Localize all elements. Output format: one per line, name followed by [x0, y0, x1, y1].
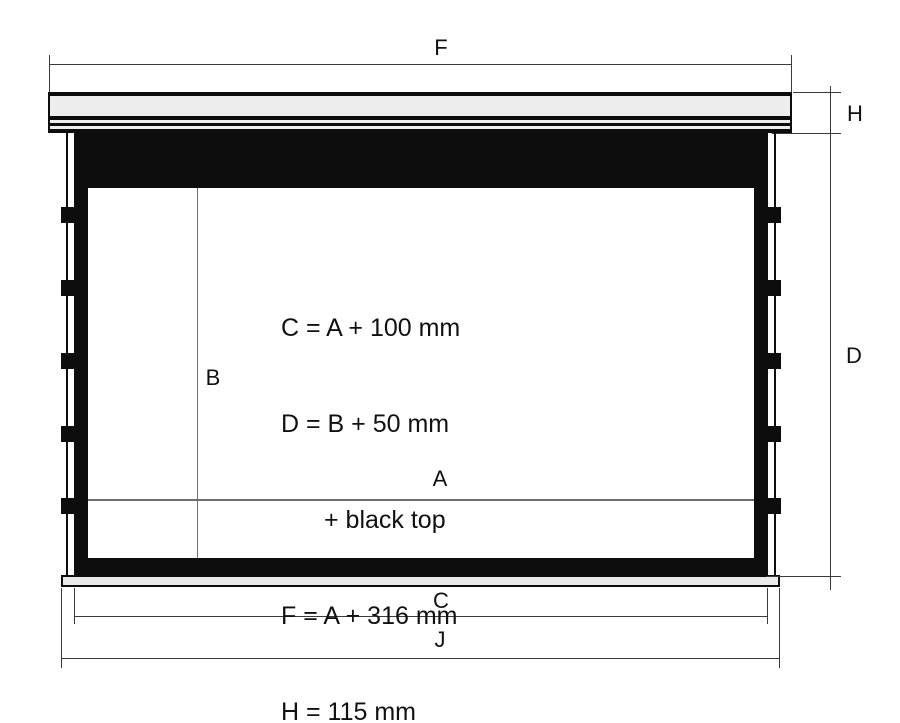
tension-tab-right-4	[765, 426, 781, 442]
label-h: H	[843, 102, 867, 126]
f-extension-line-right	[791, 55, 792, 92]
label-f: F	[429, 36, 453, 60]
formula-line-d: D = B + 50 mm	[281, 408, 460, 440]
tension-tab-left-4	[61, 426, 77, 442]
c-extension-line-right	[767, 588, 768, 624]
h-tick-top	[793, 92, 841, 93]
projection-screen-dimension-drawing: F H B A D C J C =	[0, 0, 900, 723]
j-extension-line-left	[61, 588, 62, 668]
f-extension-line-left	[49, 55, 50, 92]
housing-top-edge	[50, 92, 790, 96]
tension-tab-right-1	[765, 207, 781, 223]
j-extension-line-right	[779, 588, 780, 668]
label-b: B	[201, 366, 225, 390]
formula-line-f: F = A + 316 mm	[281, 600, 460, 632]
d-tick-bottom	[766, 576, 841, 577]
tension-tab-left-2	[61, 280, 77, 296]
screen-housing	[48, 92, 792, 133]
tension-tab-left-1	[61, 207, 77, 223]
housing-groove-lower	[50, 123, 790, 126]
c-extension-line-left	[74, 588, 75, 624]
tension-tab-right-2	[765, 280, 781, 296]
b-dimension-line	[197, 188, 198, 558]
h-d-dimension-line	[830, 86, 831, 590]
formula-line-c: C = A + 100 mm	[281, 312, 460, 344]
f-dimension-line	[49, 64, 792, 65]
tension-tab-right-5	[765, 498, 781, 514]
tension-tab-left-3	[61, 353, 77, 369]
formula-line-d-continued: + black top	[281, 504, 460, 536]
formula-line-h: H = 115 mm	[281, 696, 460, 723]
tension-tab-right-3	[765, 353, 781, 369]
dimension-formulas: C = A + 100 mm D = B + 50 mm + black top…	[281, 248, 460, 723]
tension-tab-left-5	[61, 498, 77, 514]
housing-groove-upper	[50, 116, 790, 120]
label-d: D	[842, 344, 866, 368]
